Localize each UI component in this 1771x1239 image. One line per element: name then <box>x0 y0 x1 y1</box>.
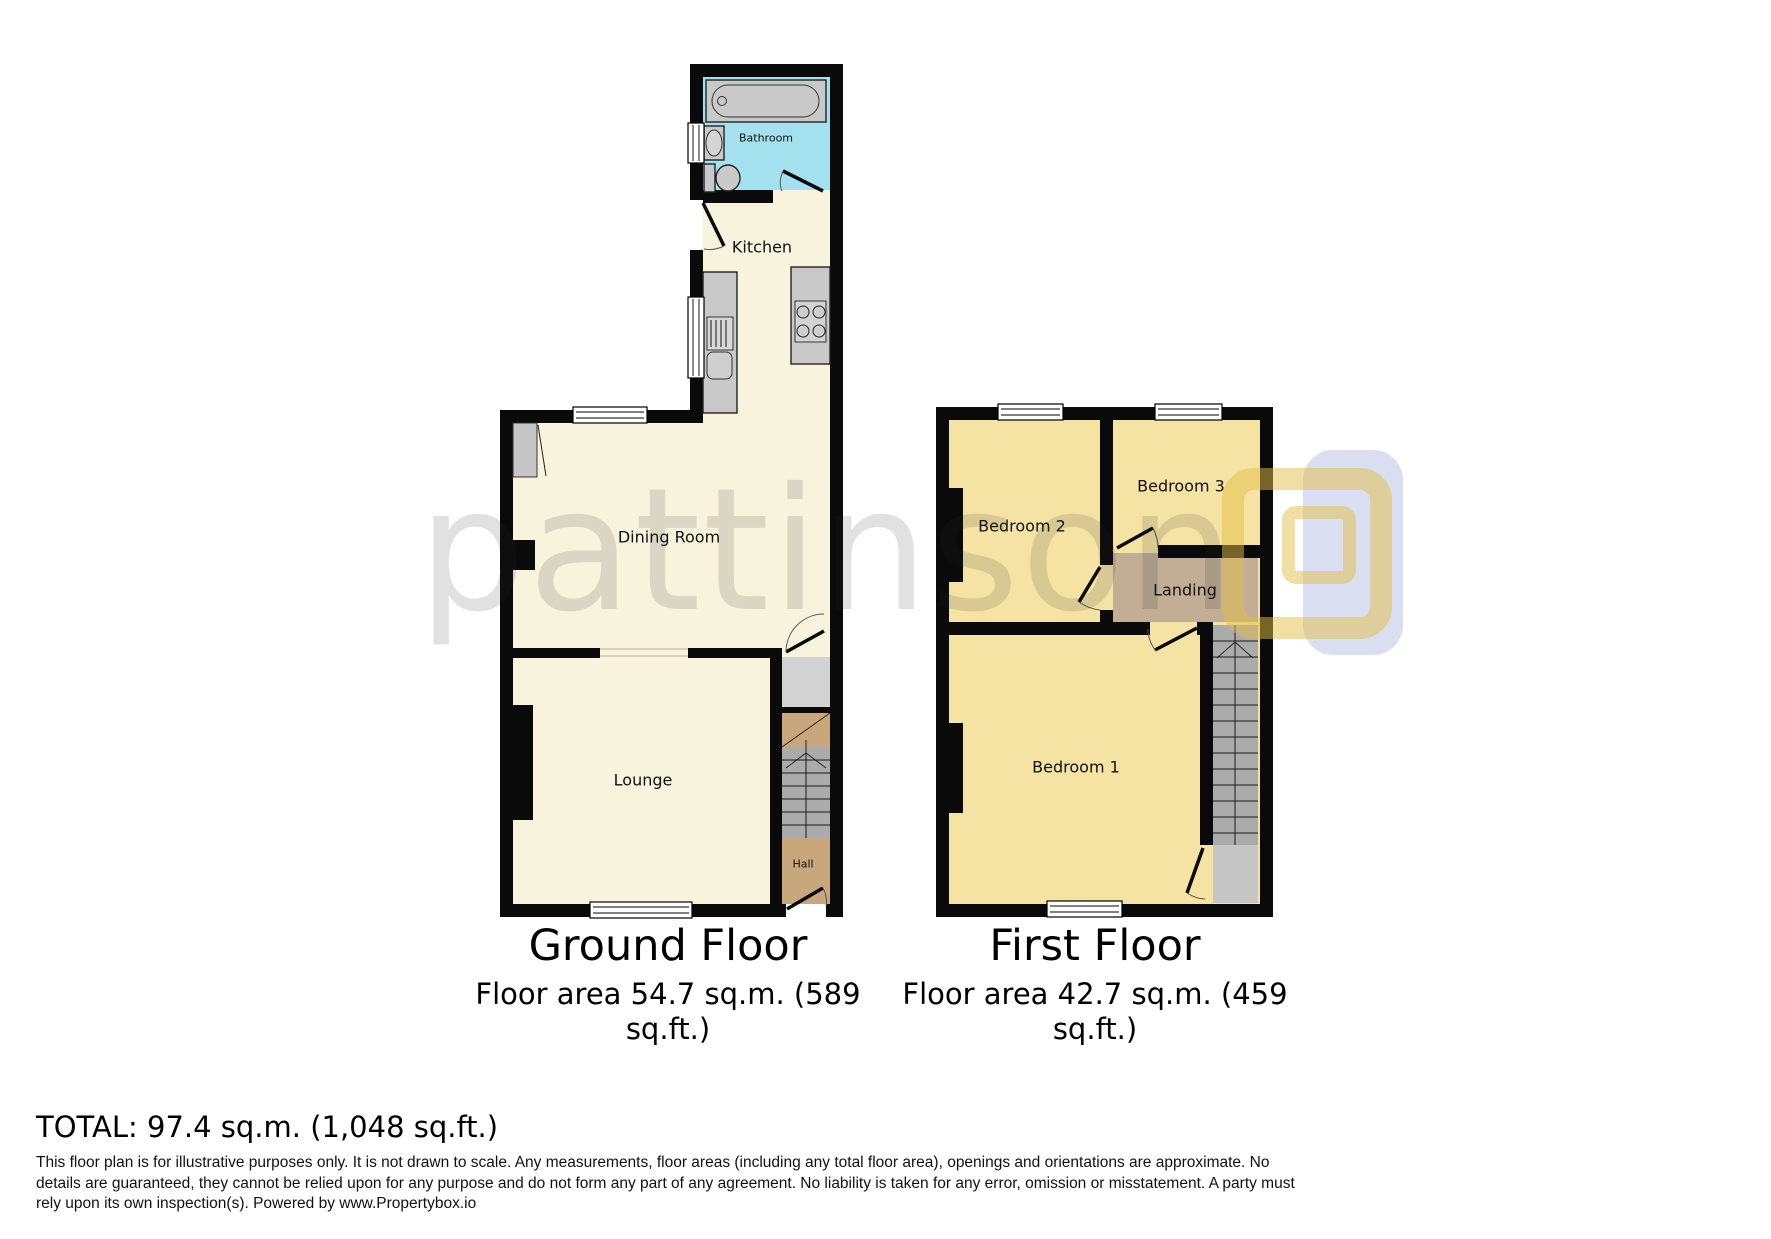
stair-bottom-landing <box>1213 845 1258 903</box>
disclaimer-text: This floor plan is for illustrative purp… <box>36 1153 1306 1215</box>
bedroom3-window <box>1155 404 1222 420</box>
floorplan-graphics <box>0 0 1771 1239</box>
lounge-chimney-breast <box>513 705 533 820</box>
stair-half-landing <box>782 657 830 707</box>
toilet-cistern <box>704 164 715 192</box>
ground-floor-area: Floor area 54.7 sq.m. (589 sq.ft.) <box>443 977 893 1047</box>
bathtub <box>706 80 826 122</box>
total-area-line: TOTAL: 97.4 sq.m. (1,048 sq.ft.) <box>36 1110 498 1144</box>
first-floor-area: Floor area 42.7 sq.m. (459 sq.ft.) <box>870 977 1320 1047</box>
room-label-kitchen: Kitchen <box>732 238 792 257</box>
ground-floor-plan <box>500 64 843 918</box>
sink-basin <box>707 352 732 379</box>
bathroom-window <box>688 123 704 163</box>
room-label-lounge: Lounge <box>614 771 673 790</box>
ground-floor-area-line2: sq.ft.) <box>626 1012 710 1046</box>
room-label-bedroom3: Bedroom 3 <box>1137 477 1225 496</box>
room-label-hall: Hall <box>792 858 813 871</box>
room-label-bedroom1: Bedroom 1 <box>1032 758 1120 777</box>
bedroom1-window <box>1047 901 1122 917</box>
room-label-bedroom2: Bedroom 2 <box>978 517 1066 536</box>
dining-chimney-breast <box>513 540 535 570</box>
first-floor-area-line2: sq.ft.) <box>1053 1012 1137 1046</box>
lounge-window <box>590 902 692 918</box>
room-label-bathroom: Bathroom <box>739 132 793 145</box>
first-floor-title: First Floor <box>845 921 1345 971</box>
dining-cupboard <box>513 423 537 477</box>
toilet-bowl <box>716 165 740 191</box>
stair-separator-wall <box>782 707 830 713</box>
kitchen-window <box>688 297 704 378</box>
room-label-dining-room: Dining Room <box>618 528 720 547</box>
ground-floor-title: Ground Floor <box>418 921 918 971</box>
dining-window <box>573 407 647 423</box>
floorplan-page: pattinson Bathroom Kitchen Dining Room L… <box>0 0 1771 1239</box>
bedroom2-chimney-breast <box>949 488 963 582</box>
bedroom1-chimney-breast <box>949 723 963 813</box>
room-label-landing: Landing <box>1153 581 1217 600</box>
first-floor-area-line1: Floor area 42.7 sq.m. (459 <box>902 977 1287 1011</box>
bedroom2-window <box>998 404 1063 420</box>
hall-floor-fill <box>782 838 830 904</box>
ground-floor-area-line1: Floor area 54.7 sq.m. (589 <box>475 977 860 1011</box>
